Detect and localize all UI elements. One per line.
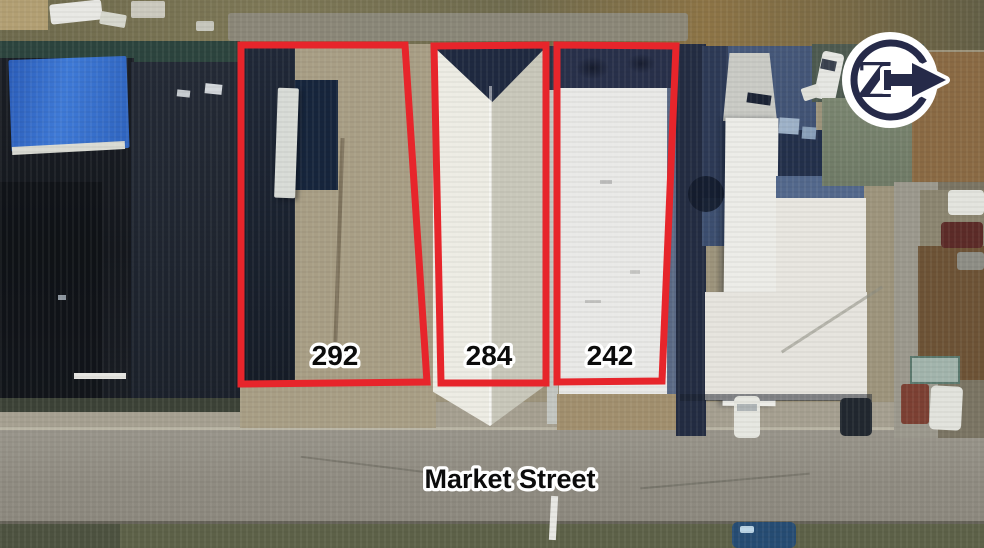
photo-grain <box>0 0 984 548</box>
aerial-photo: 292 284 242 Market Street Z <box>0 0 984 548</box>
